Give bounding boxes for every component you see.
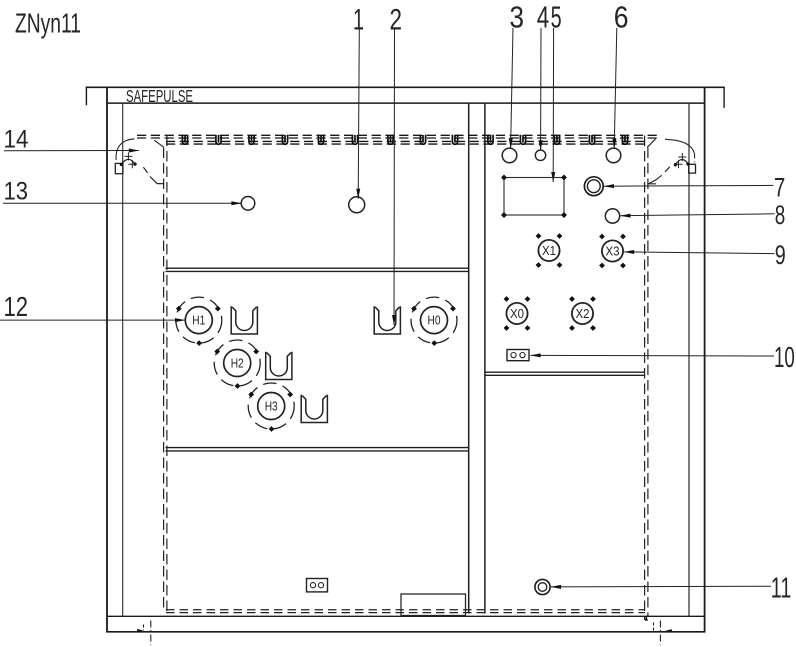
svg-text:5: 5 [551, 0, 562, 35]
svg-text:X2: X2 [576, 307, 590, 321]
svg-text:SAFEPULSE: SAFEPULSE [126, 86, 193, 106]
svg-text:4: 4 [537, 0, 550, 35]
svg-text:H1: H1 [192, 314, 205, 328]
svg-text:1: 1 [353, 4, 364, 37]
svg-text:7: 7 [774, 172, 785, 202]
svg-text:H0: H0 [428, 314, 441, 328]
svg-text:12: 12 [4, 291, 29, 322]
svg-text:X1: X1 [542, 244, 556, 258]
svg-text:13: 13 [4, 177, 29, 205]
svg-text:X3: X3 [606, 245, 620, 259]
svg-text:9: 9 [775, 240, 786, 270]
svg-text:3: 3 [510, 0, 525, 35]
svg-text:H2: H2 [231, 357, 244, 371]
svg-text:ZNyn11: ZNyn11 [15, 7, 81, 38]
svg-text:10: 10 [774, 342, 795, 374]
svg-text:X0: X0 [510, 307, 524, 321]
svg-text:H3: H3 [265, 400, 278, 414]
svg-text:2: 2 [390, 4, 403, 37]
svg-text:11: 11 [771, 573, 792, 605]
svg-text:8: 8 [775, 200, 786, 230]
svg-text:14: 14 [4, 126, 29, 153]
svg-text:6: 6 [614, 0, 629, 35]
